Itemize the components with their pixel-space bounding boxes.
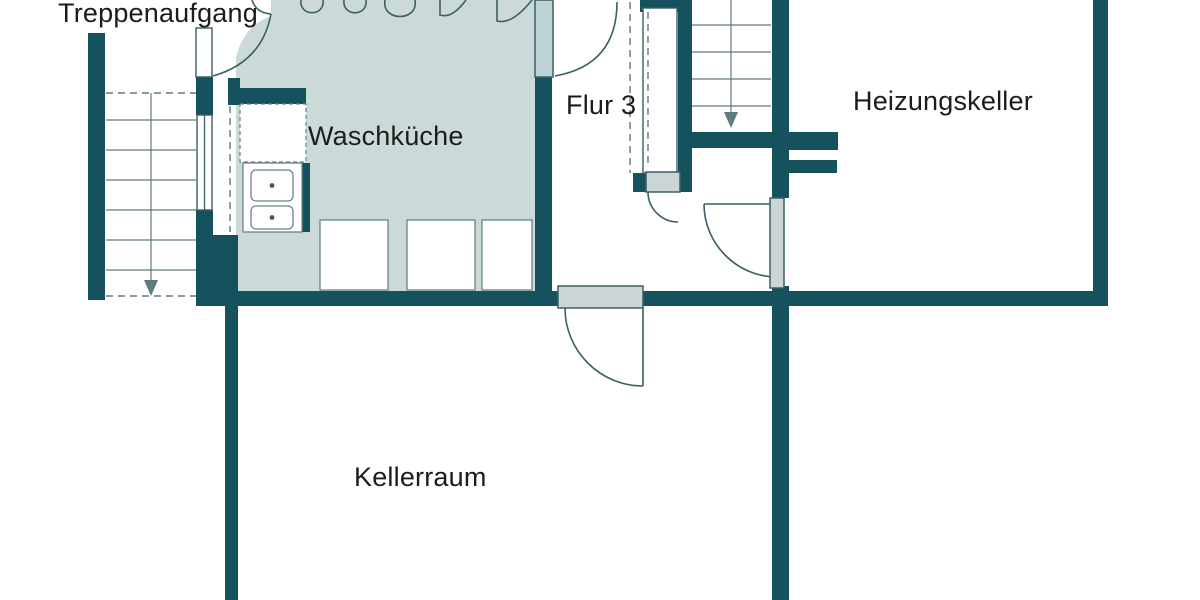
stair-down-arrow-icon xyxy=(144,280,158,296)
wall-stair-left xyxy=(88,33,105,300)
room-label-hall: Flur 3 xyxy=(566,90,636,121)
door-leaf xyxy=(646,172,680,192)
chimney-top-bar xyxy=(789,132,838,150)
room-label-boiler: Heizungskeller xyxy=(853,86,1033,117)
wall-nook-top xyxy=(228,88,306,104)
door-hall-small xyxy=(646,172,680,222)
wall-stove-side xyxy=(302,163,310,232)
room-label-cellar: Kellerraum xyxy=(354,462,487,493)
stove xyxy=(243,163,302,232)
door-swing-arc xyxy=(555,2,617,76)
washer-box xyxy=(240,104,306,162)
wall-stair-right-upper xyxy=(196,77,213,115)
door-swing-arc xyxy=(704,204,777,277)
door-leaf xyxy=(196,28,212,77)
staircase-right xyxy=(692,0,771,128)
chimney-bottom-bar xyxy=(789,160,837,173)
stove-knob-icon xyxy=(270,183,275,188)
wall-boiler-right xyxy=(1093,0,1108,306)
wall-stair2-bottom xyxy=(678,132,789,148)
wall-laundry-bottom xyxy=(225,291,558,306)
wall-bottom-band xyxy=(643,291,1108,306)
wall-flur-stair-left xyxy=(678,0,692,192)
room-label-stairwell: Treppenaufgang xyxy=(58,0,258,29)
wall-central-upper xyxy=(772,0,789,198)
wall-laundry-right xyxy=(535,77,552,291)
door-leaf xyxy=(558,286,643,308)
door-swing-arc xyxy=(648,192,678,222)
door-cellar xyxy=(558,286,643,386)
floor-plan: Treppenaufgang Waschküche Flur 3 Heizung… xyxy=(0,0,1200,600)
washing-machine xyxy=(482,220,532,290)
staircase-left xyxy=(106,93,196,296)
door-stairwell-side xyxy=(197,115,212,210)
wall-central-lower xyxy=(772,286,789,600)
door-leaf xyxy=(770,198,784,288)
stair-down-arrow-icon xyxy=(724,112,738,128)
washing-machine xyxy=(320,220,388,290)
wall-cellar-left xyxy=(225,306,238,600)
room-label-laundry: Waschküche xyxy=(308,121,464,152)
door-swing-arc xyxy=(565,308,643,386)
door-hall-boiler xyxy=(704,198,784,288)
stove-knob-icon xyxy=(270,215,275,220)
door-leaf xyxy=(535,0,553,77)
washing-machine xyxy=(407,220,475,290)
door-laundry-hall xyxy=(535,0,617,77)
